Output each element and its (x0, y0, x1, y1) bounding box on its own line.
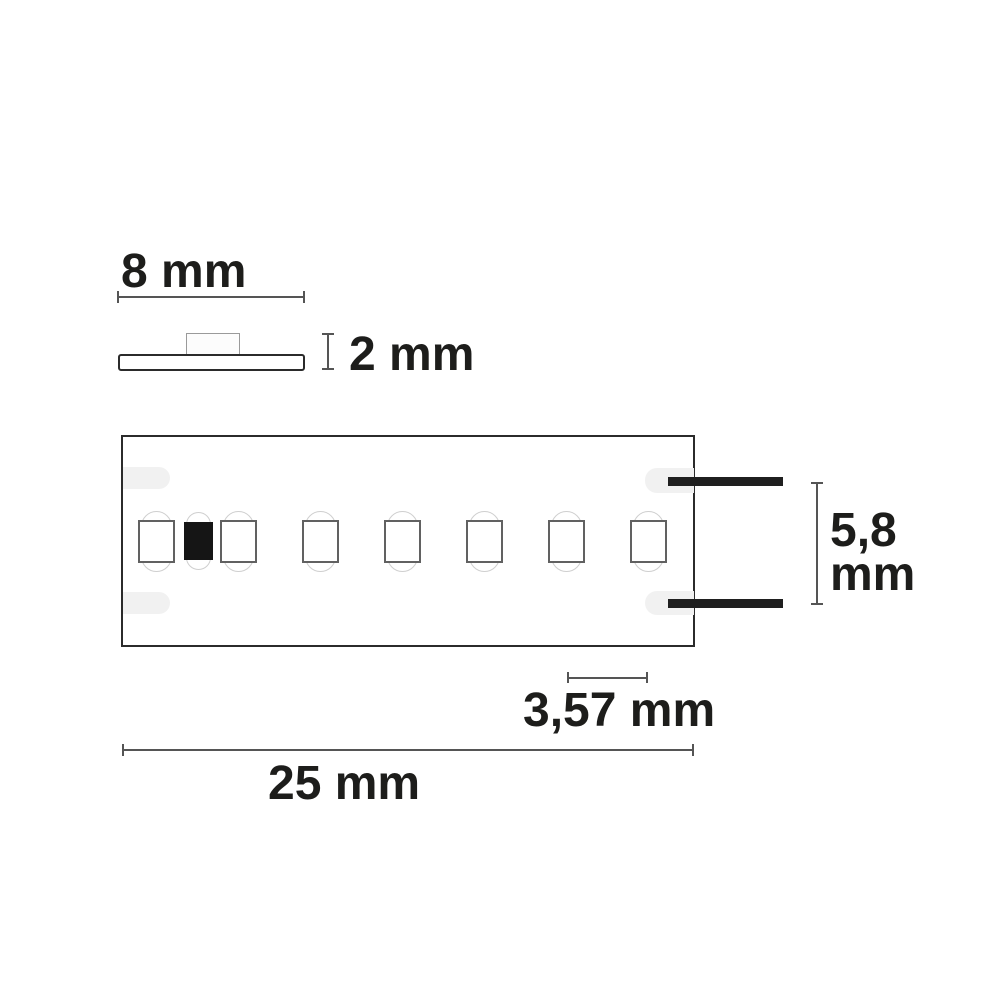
dim-tick (692, 744, 694, 756)
dim-tick (303, 291, 305, 303)
dim-label-5-8mm-line1: 5,8 (830, 509, 915, 553)
dim-line-5-8mm (816, 482, 818, 605)
solder-pad (123, 467, 170, 489)
wire-negative (668, 599, 783, 608)
wire-positive (668, 477, 783, 486)
led-strip-dimension-diagram: 8 mm 2 mm 5,8 mm 3,57 m (0, 0, 1000, 1000)
dim-line-25mm (122, 749, 694, 751)
dim-label-25mm: 25 mm (268, 760, 420, 808)
dim-tick (322, 333, 334, 335)
dim-tick (117, 291, 119, 303)
dim-label-2mm: 2 mm (349, 331, 474, 379)
dim-label-5-8mm-line2: mm (830, 553, 915, 597)
dim-tick (811, 482, 823, 484)
dim-tick (322, 368, 334, 370)
dim-label-8mm: 8 mm (121, 248, 246, 296)
dim-label-5-8mm: 5,8 mm (830, 509, 915, 597)
dim-tick (646, 672, 648, 683)
dim-line-2mm (327, 334, 329, 370)
led-chip-profile (186, 333, 240, 356)
strip-pcb-outline (121, 435, 695, 647)
solder-pad (123, 592, 170, 614)
dim-tick (811, 603, 823, 605)
dim-line-8mm (117, 296, 305, 298)
dim-tick (567, 672, 569, 683)
dim-line-3-57mm (567, 677, 648, 679)
dim-label-3-57mm: 3,57 mm (523, 687, 715, 735)
strip-base-profile (118, 354, 305, 371)
dim-tick (122, 744, 124, 756)
